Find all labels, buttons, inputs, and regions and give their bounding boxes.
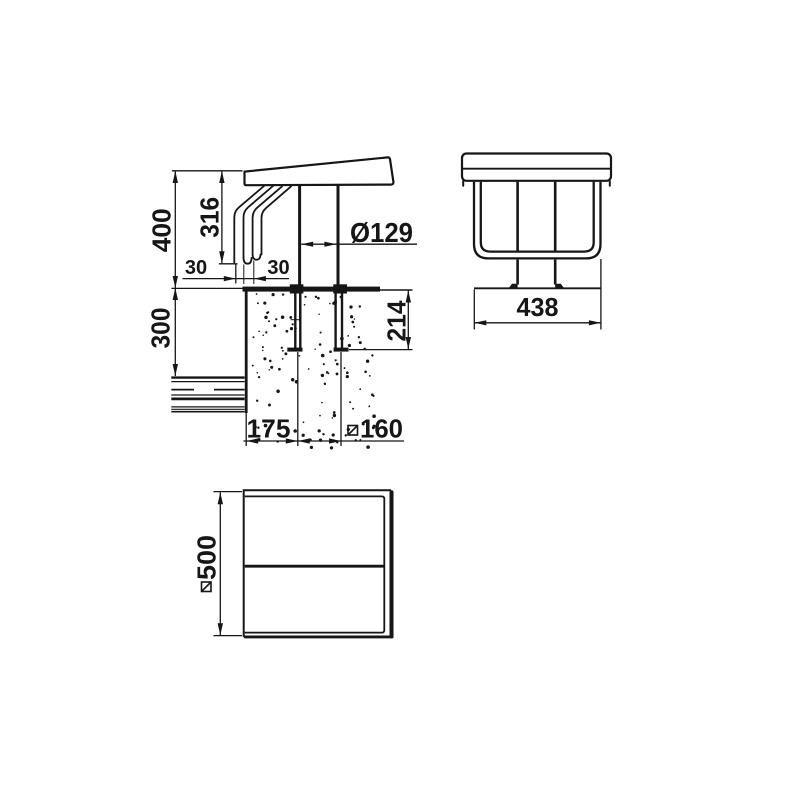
svg-text:500: 500 [192, 535, 222, 580]
svg-text:316: 316 [195, 197, 225, 238]
svg-text:438: 438 [517, 292, 559, 322]
svg-text:Ø129: Ø129 [350, 217, 413, 248]
svg-text:30: 30 [185, 257, 207, 279]
svg-text:214: 214 [382, 300, 412, 342]
svg-text:300: 300 [146, 308, 176, 349]
svg-text:400: 400 [147, 208, 177, 252]
svg-text:30: 30 [267, 257, 289, 279]
svg-text:160: 160 [360, 414, 403, 444]
svg-text:175: 175 [247, 414, 291, 444]
